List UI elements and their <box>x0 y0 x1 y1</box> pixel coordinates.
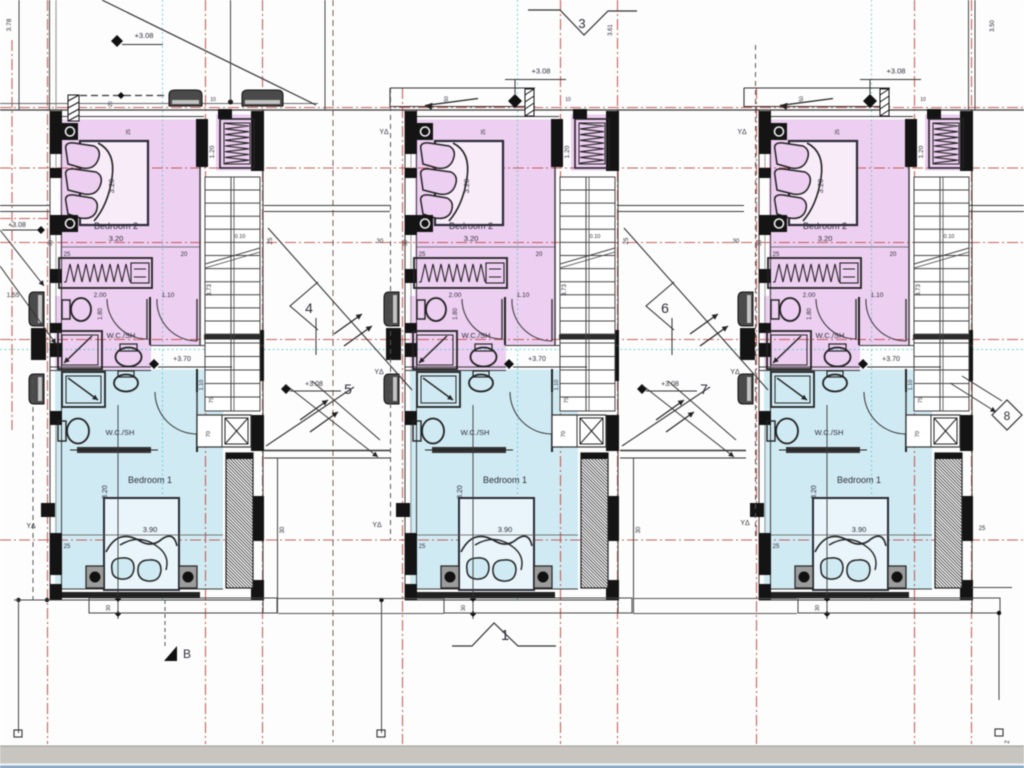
svg-text:1.20: 1.20 <box>918 145 925 158</box>
svg-text:+3.08: +3.08 <box>532 67 551 76</box>
svg-text:20: 20 <box>890 252 897 258</box>
svg-text:10: 10 <box>210 97 216 103</box>
svg-text:3.20: 3.20 <box>457 485 464 499</box>
svg-text:3.90: 3.90 <box>143 525 158 534</box>
svg-text:3.50: 3.50 <box>990 20 996 32</box>
svg-text:+3.70: +3.70 <box>173 356 191 363</box>
svg-text:50: 50 <box>799 96 805 102</box>
svg-text:30: 30 <box>733 239 740 245</box>
svg-text:1.10: 1.10 <box>517 292 530 299</box>
svg-text:Bedroom 2: Bedroom 2 <box>449 221 493 231</box>
svg-text:75: 75 <box>918 397 924 403</box>
svg-text:1.20: 1.20 <box>209 145 216 158</box>
svg-text:25: 25 <box>268 237 274 244</box>
svg-text:30: 30 <box>461 605 467 611</box>
svg-text:3.61: 3.61 <box>608 24 614 36</box>
svg-text:+3.70: +3.70 <box>528 356 546 363</box>
svg-text:2.00: 2.00 <box>449 292 462 299</box>
svg-text:3.73: 3.73 <box>916 284 922 296</box>
svg-text:1.10: 1.10 <box>908 380 914 391</box>
svg-text:30: 30 <box>757 240 763 246</box>
svg-text:20: 20 <box>536 252 543 258</box>
svg-text:0.10: 0.10 <box>944 234 955 240</box>
svg-text:YΔ: YΔ <box>374 369 384 376</box>
svg-text:30: 30 <box>403 240 409 246</box>
svg-text:1.10: 1.10 <box>554 380 560 391</box>
svg-text:Bedroom 1: Bedroom 1 <box>128 475 172 485</box>
svg-text:1.10: 1.10 <box>162 292 175 299</box>
svg-text:25: 25 <box>979 526 986 532</box>
svg-text:+3.08: +3.08 <box>305 381 323 388</box>
svg-text:YΔ: YΔ <box>730 369 740 376</box>
svg-text:1.80: 1.80 <box>807 308 813 320</box>
svg-text:3: 3 <box>578 16 585 31</box>
svg-text:30: 30 <box>377 239 384 245</box>
svg-text:8: 8 <box>1004 409 1011 423</box>
svg-text:20: 20 <box>181 252 188 258</box>
svg-text:70: 70 <box>915 431 921 437</box>
svg-text:2.00: 2.00 <box>803 292 816 299</box>
svg-text:3.20: 3.20 <box>109 234 124 243</box>
svg-text:3.20: 3.20 <box>811 485 818 499</box>
svg-text:4: 4 <box>305 300 313 316</box>
svg-text:70: 70 <box>561 431 567 437</box>
svg-text:25: 25 <box>624 237 630 244</box>
svg-text:1: 1 <box>501 627 509 644</box>
svg-text:+3.08: +3.08 <box>135 31 154 40</box>
svg-text:30: 30 <box>815 605 821 611</box>
svg-text:5: 5 <box>344 381 352 397</box>
svg-text:3.73: 3.73 <box>562 284 568 296</box>
svg-text:W.C./SH: W.C./SH <box>106 428 135 437</box>
svg-text:Bedroom 1: Bedroom 1 <box>837 475 881 485</box>
svg-text:50: 50 <box>444 96 450 102</box>
svg-text:0.10: 0.10 <box>235 234 246 240</box>
svg-text:1.80: 1.80 <box>453 308 459 320</box>
svg-text:10: 10 <box>920 97 926 103</box>
svg-text:25: 25 <box>126 129 132 135</box>
svg-text:25: 25 <box>835 129 841 135</box>
svg-text:1.10: 1.10 <box>199 380 205 391</box>
svg-text:W.C./SH: W.C./SH <box>462 331 491 340</box>
svg-text:B: B <box>183 647 191 661</box>
svg-text:W.C./SH: W.C./SH <box>107 331 136 340</box>
svg-text:25: 25 <box>481 129 487 135</box>
svg-text:3.20: 3.20 <box>462 179 471 194</box>
svg-text:30: 30 <box>106 605 112 611</box>
svg-text:1.80: 1.80 <box>98 308 104 320</box>
svg-text:1.55: 1.55 <box>7 292 20 299</box>
svg-text:YΔ: YΔ <box>740 520 750 527</box>
svg-text:1.10: 1.10 <box>871 292 884 299</box>
svg-text:Bedroom 1: Bedroom 1 <box>483 475 527 485</box>
svg-text:30: 30 <box>280 526 286 533</box>
svg-text:YΔ: YΔ <box>379 129 389 136</box>
svg-text:Bedroom 2: Bedroom 2 <box>803 221 847 231</box>
svg-text:YΔ: YΔ <box>737 129 747 136</box>
svg-text:75: 75 <box>564 397 570 403</box>
svg-text:3.20: 3.20 <box>818 234 833 243</box>
svg-text:30: 30 <box>636 526 642 533</box>
svg-text:+3.08: +3.08 <box>887 67 906 76</box>
svg-text:3.90: 3.90 <box>498 525 513 534</box>
svg-text:0.10: 0.10 <box>590 234 601 240</box>
svg-text:3.20: 3.20 <box>816 179 825 194</box>
svg-text:30: 30 <box>48 240 54 246</box>
svg-text:YΔ: YΔ <box>372 522 382 529</box>
svg-text:1.20: 1.20 <box>564 145 571 158</box>
svg-text:3.20: 3.20 <box>107 179 116 194</box>
svg-text:3.73: 3.73 <box>207 284 213 296</box>
svg-text:3.20: 3.20 <box>102 485 109 499</box>
svg-text:7: 7 <box>700 381 708 397</box>
svg-text:3.20: 3.20 <box>464 234 479 243</box>
svg-text:3.90: 3.90 <box>852 525 867 534</box>
svg-text:+3.08: +3.08 <box>8 222 26 229</box>
svg-text:3.78: 3.78 <box>6 18 13 31</box>
svg-text:70: 70 <box>206 431 212 437</box>
svg-text:25: 25 <box>64 544 71 550</box>
svg-text:W.C./SH: W.C./SH <box>461 428 490 437</box>
svg-text:YΔ: YΔ <box>26 523 36 530</box>
svg-text:25: 25 <box>773 544 780 550</box>
svg-text:Bedroom 2: Bedroom 2 <box>94 221 138 231</box>
svg-text:+3.08: +3.08 <box>661 381 679 388</box>
svg-text:2.00: 2.00 <box>94 292 107 299</box>
svg-text:10: 10 <box>565 97 571 103</box>
svg-text:+3.70: +3.70 <box>882 356 900 363</box>
svg-text:75: 75 <box>209 397 215 403</box>
svg-text:W.C./SH: W.C./SH <box>816 331 845 340</box>
svg-text:20: 20 <box>108 101 114 107</box>
svg-text:W.C./SH: W.C./SH <box>815 428 844 437</box>
svg-text:25: 25 <box>419 544 426 550</box>
svg-text:6: 6 <box>661 300 669 316</box>
